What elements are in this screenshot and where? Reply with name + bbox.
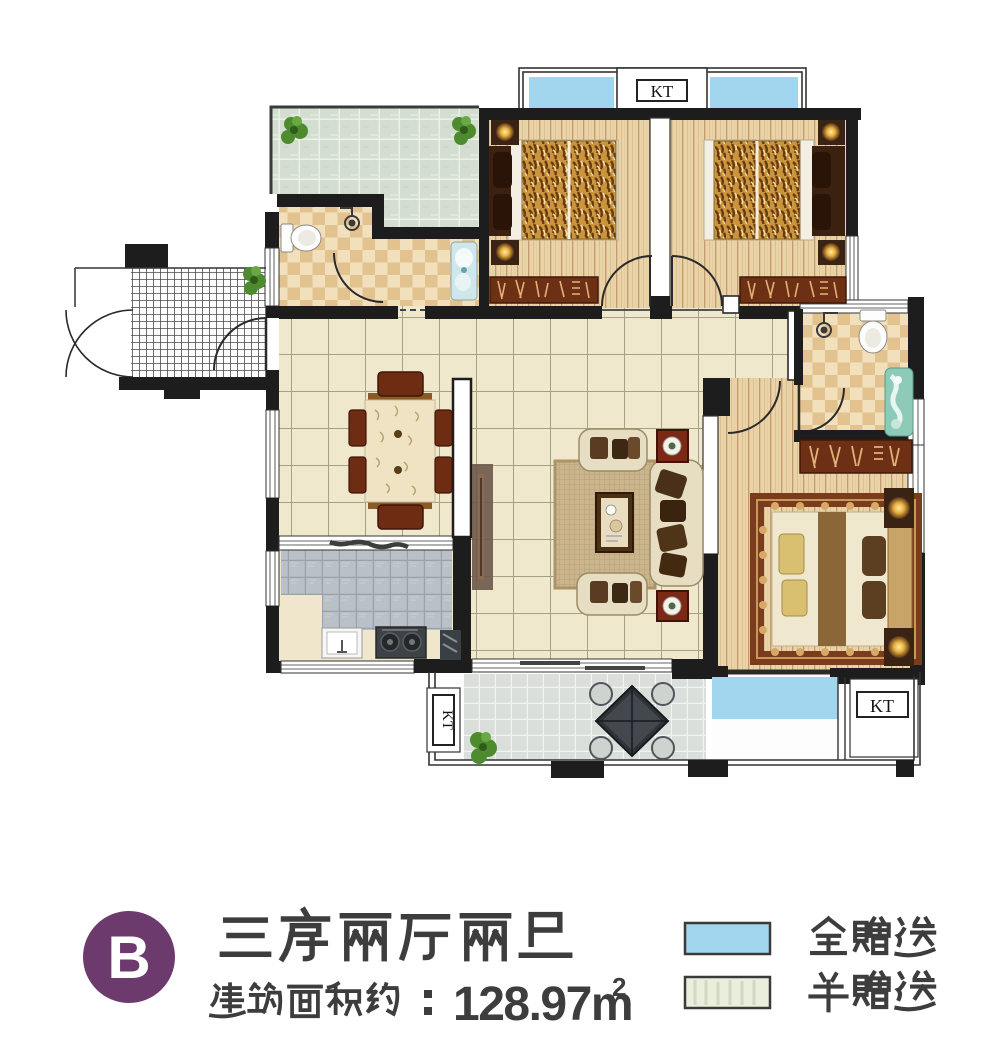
svg-text:KT: KT xyxy=(651,82,674,101)
svg-text:KT: KT xyxy=(439,710,455,730)
svg-text:B: B xyxy=(107,924,150,991)
svg-text:2: 2 xyxy=(612,972,626,1002)
svg-text:KT: KT xyxy=(870,696,894,716)
svg-text:128.97m: 128.97m xyxy=(453,978,632,1031)
